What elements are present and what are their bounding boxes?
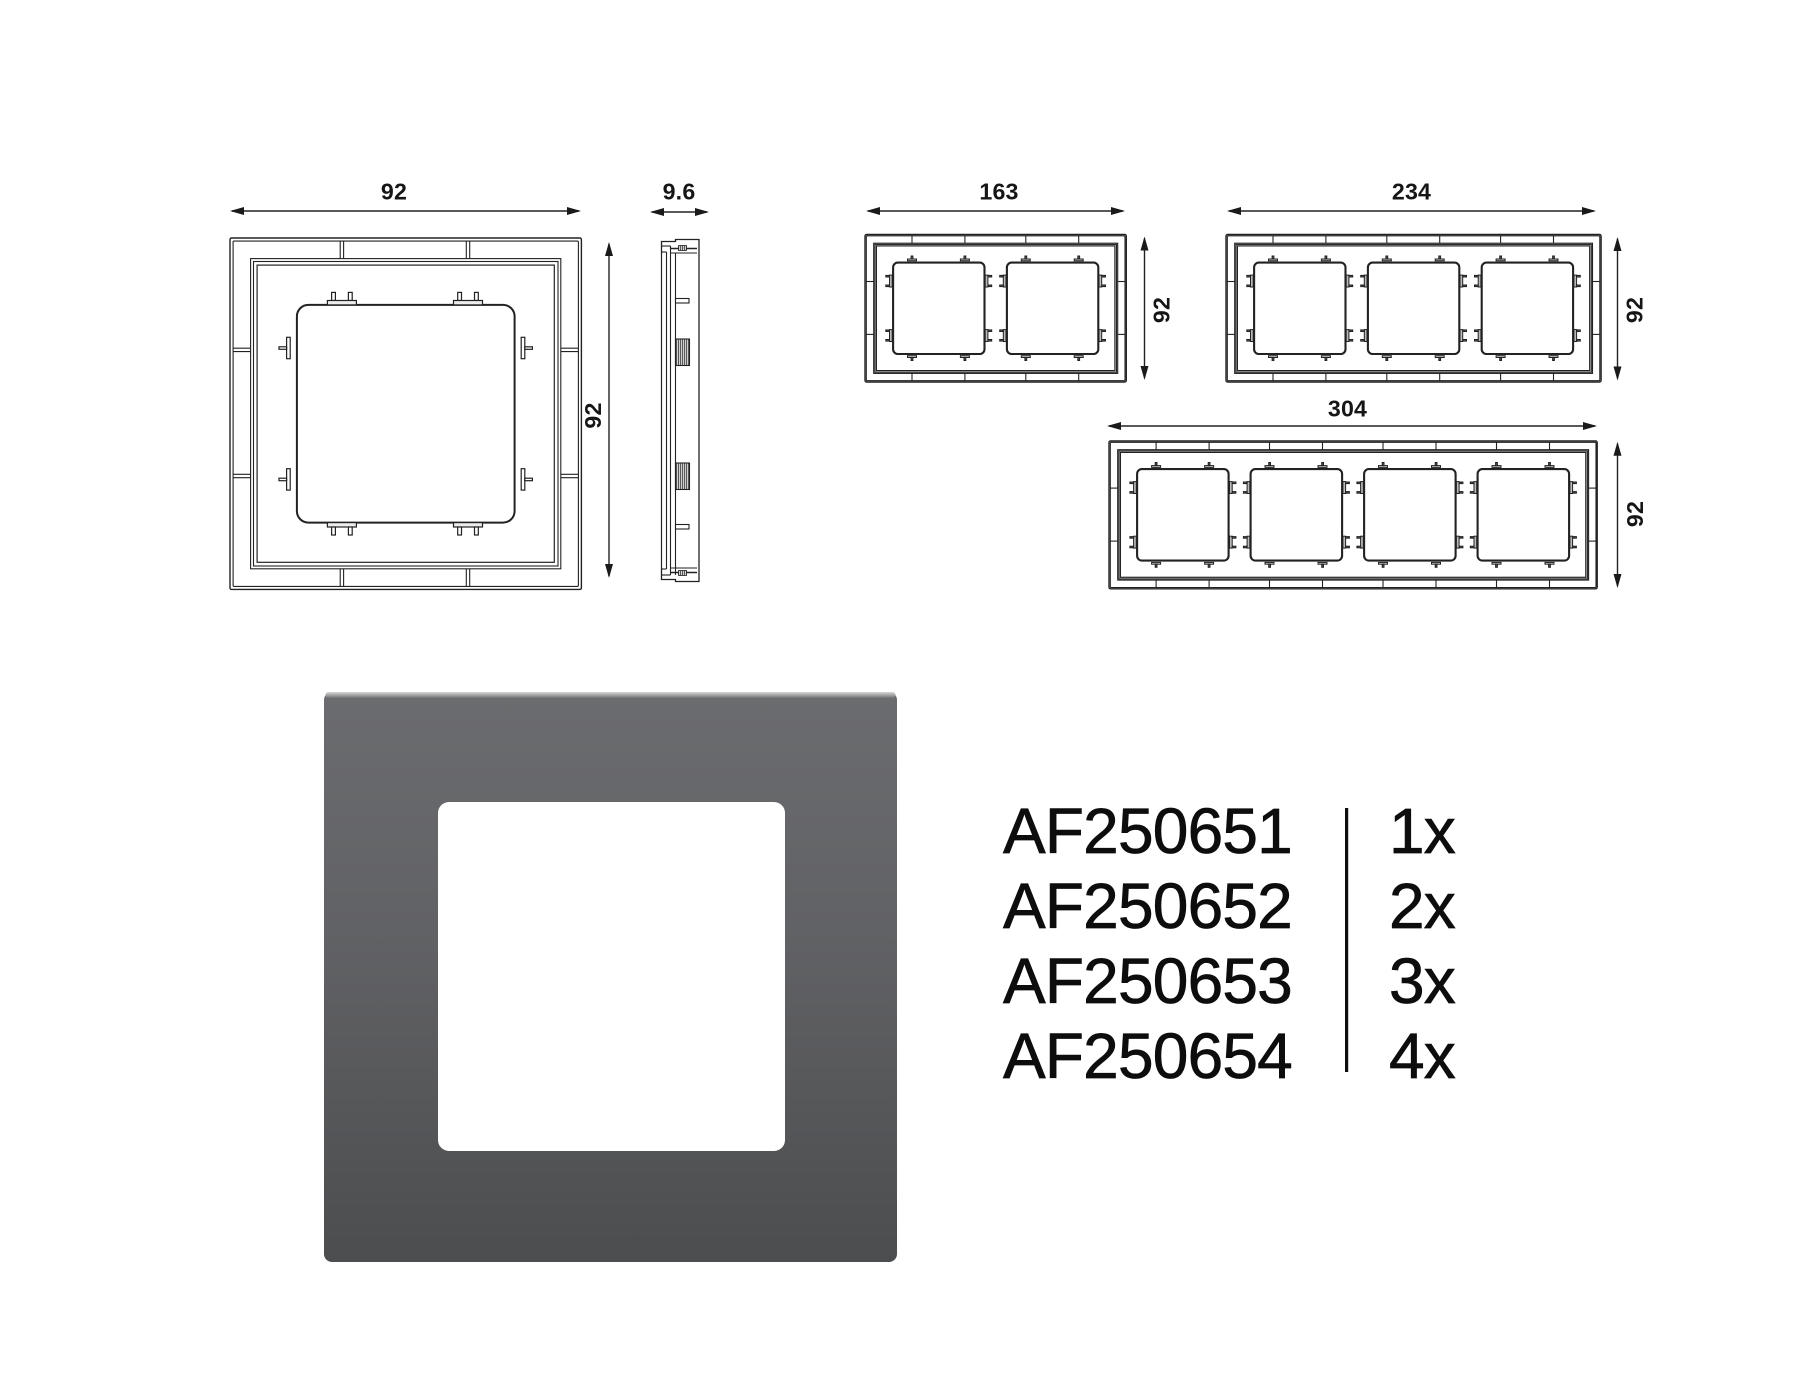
svg-text:234: 234 bbox=[1392, 179, 1431, 205]
svg-text:92: 92 bbox=[1149, 297, 1175, 323]
svg-text:92: 92 bbox=[580, 402, 606, 428]
svg-text:AF250651: AF250651 bbox=[1003, 795, 1292, 867]
svg-text:92: 92 bbox=[381, 179, 407, 205]
svg-text:AF250652: AF250652 bbox=[1003, 870, 1292, 942]
svg-text:92: 92 bbox=[1622, 297, 1648, 323]
svg-text:AF250654: AF250654 bbox=[1003, 1020, 1292, 1092]
svg-text:1x: 1x bbox=[1389, 795, 1456, 867]
svg-text:4x: 4x bbox=[1389, 1020, 1456, 1092]
svg-text:2x: 2x bbox=[1389, 870, 1456, 942]
svg-text:163: 163 bbox=[979, 179, 1018, 205]
svg-text:3x: 3x bbox=[1389, 945, 1456, 1017]
svg-text:304: 304 bbox=[1328, 396, 1367, 422]
svg-text:AF250653: AF250653 bbox=[1003, 945, 1292, 1017]
svg-text:92: 92 bbox=[1622, 501, 1648, 527]
svg-text:9.6: 9.6 bbox=[663, 179, 696, 205]
